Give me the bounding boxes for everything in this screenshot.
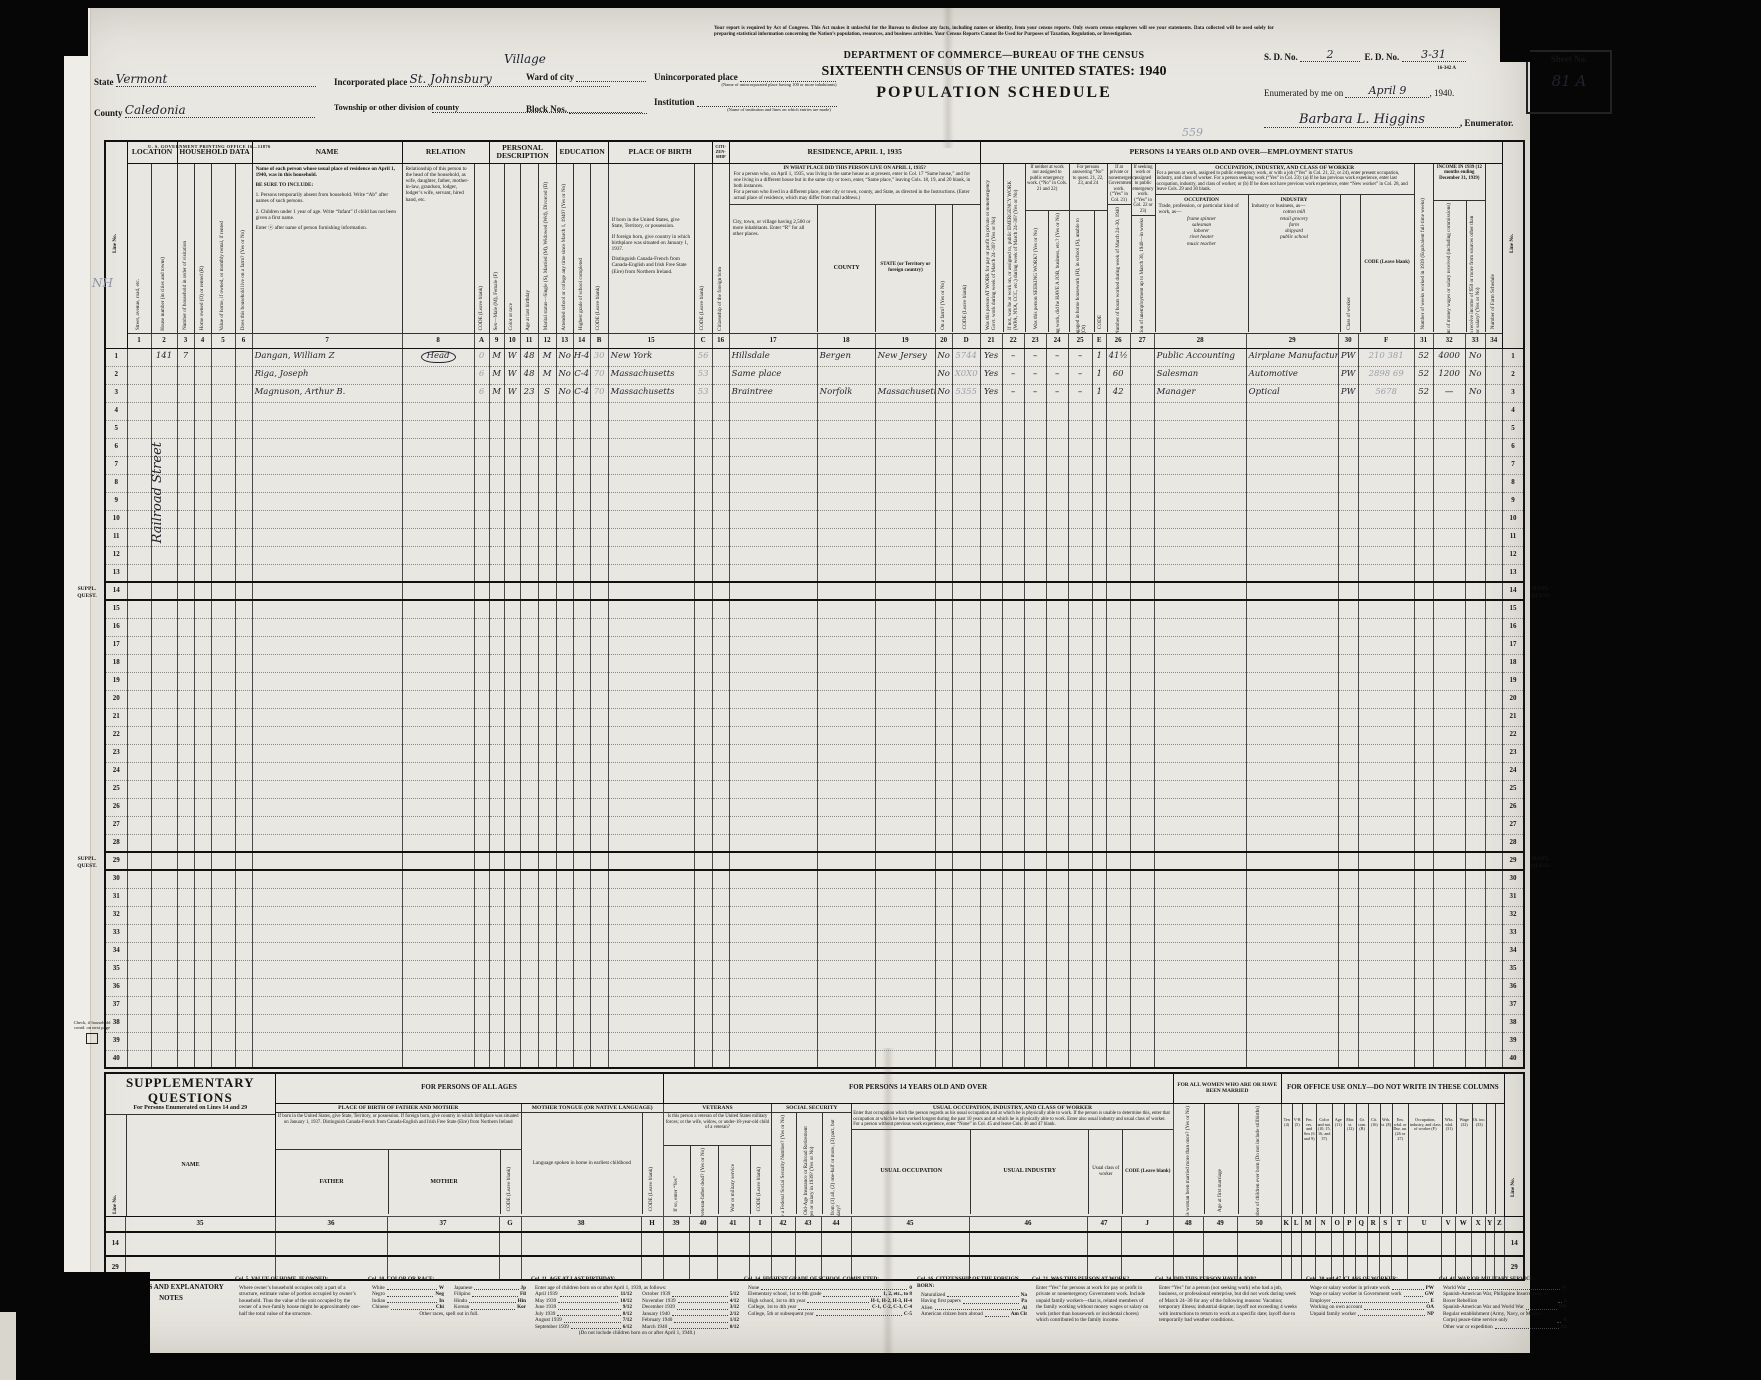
supp-cell: [1291, 1232, 1301, 1256]
col-number: 9: [489, 333, 504, 348]
grid-cell: [817, 924, 875, 942]
grid-cell: [712, 942, 729, 960]
col-header-age: Age at last birthday: [520, 163, 538, 333]
grid-cell: [556, 474, 573, 492]
grid-cell: [1046, 960, 1068, 978]
grid-cell: [817, 834, 875, 852]
grid-cell: [712, 816, 729, 834]
grid-cell: [538, 708, 556, 726]
grid-cell: [538, 528, 556, 546]
grid-cell: [1068, 438, 1092, 456]
grid-cell: No: [935, 348, 952, 366]
grid-cell: [1246, 618, 1338, 636]
line-number: 3: [105, 384, 127, 402]
grid-cell: [1485, 744, 1502, 762]
grid-cell: [875, 996, 935, 1014]
grid-cell: [194, 960, 211, 978]
office-col-header: Ten (4): [1282, 1104, 1292, 1214]
grid-cell: [1068, 510, 1092, 528]
grid-cell: [712, 978, 729, 996]
grid-cell: [194, 618, 211, 636]
group-seeking: If seeking work or assigned to public em…: [1131, 164, 1155, 332]
street-name-handwriting: Railroad Street: [150, 338, 165, 648]
grid-cell: [1154, 978, 1246, 996]
grid-cell: [504, 888, 520, 906]
line-number: 23: [105, 744, 127, 762]
grid-cell: [980, 528, 1002, 546]
grid-cell: [817, 438, 875, 456]
grid-cell: [1433, 852, 1465, 870]
grid-cell: [127, 564, 151, 582]
grid-cell: [504, 978, 520, 996]
grid-cell: [875, 780, 935, 798]
grid-cell: [980, 672, 1002, 690]
grid-cell: [1358, 402, 1414, 420]
grid-cell: [1046, 888, 1068, 906]
grid-cell: [694, 816, 712, 834]
grid-cell: [1246, 564, 1338, 582]
line-number: 40: [1502, 1050, 1524, 1068]
grid-cell: [875, 726, 935, 744]
supp-pob-group: PLACE OF BIRTH OF FATHER AND MOTHER If b…: [276, 1104, 521, 1214]
line-number: 8: [105, 474, 127, 492]
supp-col-number: 48: [1173, 1217, 1203, 1232]
grid-cell: [1046, 852, 1068, 870]
grid-cell: [252, 690, 402, 708]
grid-cell: [474, 888, 489, 906]
grid-cell: [980, 492, 1002, 510]
grid-cell: [1338, 906, 1358, 924]
grid-cell: [1106, 438, 1130, 456]
grid-cell: Hillsdale: [729, 348, 817, 366]
grid-cell: [1002, 600, 1024, 618]
grid-cell: [608, 996, 694, 1014]
supp-col-49: Age at first marriage: [1218, 1167, 1224, 1214]
schedule-row: 2323: [105, 744, 1524, 762]
grid-cell: [489, 924, 504, 942]
grid-cell: Manager: [1154, 384, 1246, 402]
grid-cell: [1024, 978, 1046, 996]
grid-cell: [402, 546, 474, 564]
grid-cell: [402, 798, 474, 816]
grid-cell: [1358, 438, 1414, 456]
grid-cell: [1024, 726, 1046, 744]
grid-cell: [211, 564, 235, 582]
grid-cell: [504, 744, 520, 762]
grid-cell: [1465, 942, 1485, 960]
grid-cell: [177, 528, 194, 546]
grid-cell: [694, 762, 712, 780]
grid-cell: [1338, 708, 1358, 726]
grid-cell: [402, 672, 474, 690]
supp-col-number: 41: [717, 1217, 749, 1232]
grid-cell: [1338, 798, 1358, 816]
grid-cell: [694, 978, 712, 996]
grid-cell: [573, 582, 590, 600]
suppl-quest-label-right-29: SUPPL. QUEST.: [1526, 856, 1556, 869]
grid-cell: [556, 1032, 573, 1050]
grid-cell: [952, 690, 980, 708]
grid-cell: [1246, 888, 1338, 906]
supp-women-block: Has this woman been married more than on…: [1173, 1103, 1281, 1216]
supp-col-number: X: [1471, 1217, 1485, 1232]
grid-cell: [177, 888, 194, 906]
grid-cell: [474, 420, 489, 438]
supp-cell: [795, 1232, 821, 1256]
col-header-code-c: CODE (Leave blank): [694, 163, 712, 333]
grid-cell: [1358, 852, 1414, 870]
grid-cell: [194, 906, 211, 924]
grid-cell: [1338, 816, 1358, 834]
grid-cell: [1154, 528, 1246, 546]
grid-cell: [817, 456, 875, 474]
grid-cell: [590, 888, 608, 906]
grid-cell: C-4: [573, 384, 590, 402]
grid-cell: [729, 906, 817, 924]
grid-cell: [489, 834, 504, 852]
grid-cell: [194, 726, 211, 744]
grid-cell: [556, 546, 573, 564]
grid-cell: [1092, 600, 1106, 618]
grid-cell: [211, 798, 235, 816]
grid-cell: [556, 744, 573, 762]
grid-cell: [590, 906, 608, 924]
grid-cell: [590, 510, 608, 528]
grid-cell: [1068, 906, 1092, 924]
line-number: 10: [1502, 510, 1524, 528]
grid-cell: [1465, 888, 1485, 906]
grid-cell: [952, 870, 980, 888]
supp-rows: 14142929: [105, 1232, 1524, 1280]
grid-cell: [127, 1050, 151, 1068]
grid-cell: [538, 636, 556, 654]
grid-cell: [1338, 762, 1358, 780]
grid-cell: [590, 402, 608, 420]
grid-cell: [538, 852, 556, 870]
grid-cell: [474, 852, 489, 870]
grid-cell: [1433, 924, 1465, 942]
grid-cell: [177, 672, 194, 690]
grid-cell: [194, 798, 211, 816]
grid-cell: [1046, 762, 1068, 780]
supp-cell: [521, 1232, 641, 1256]
grid-cell: [1154, 744, 1246, 762]
col-number: 34: [1485, 333, 1502, 348]
grid-cell: [504, 672, 520, 690]
grid-cell: [235, 960, 252, 978]
col-number: A: [474, 333, 489, 348]
grid-cell: [1046, 1032, 1068, 1050]
grid-cell: [1246, 690, 1338, 708]
grid-cell: [1358, 888, 1414, 906]
pencil-scribble: 559: [1182, 126, 1203, 139]
col-number: 10: [504, 333, 520, 348]
grid-cell: [235, 564, 252, 582]
grid-cell: [538, 1014, 556, 1032]
grid-cell: [875, 708, 935, 726]
grid-cell: [712, 582, 729, 600]
grid-cell: [1002, 816, 1024, 834]
grid-cell: [1485, 618, 1502, 636]
grid-cell: [694, 744, 712, 762]
grid-cell: [1154, 636, 1246, 654]
line-number: 23: [1502, 744, 1524, 762]
grid-cell: [1433, 942, 1465, 960]
grid-cell: [729, 510, 817, 528]
grid-cell: [538, 654, 556, 672]
grid-cell: [712, 834, 729, 852]
office-col-header: Ot. inc. (33): [1472, 1104, 1486, 1214]
grid-cell: [1106, 600, 1130, 618]
grid-cell: [474, 474, 489, 492]
grid-cell: [608, 636, 694, 654]
grid-cell: [1414, 924, 1433, 942]
grid-cell: [504, 492, 520, 510]
grid-cell: [817, 816, 875, 834]
grid-cell: [504, 996, 520, 1014]
grid-cell: [729, 960, 817, 978]
col-number: 12: [538, 333, 556, 348]
grid-cell: [489, 438, 504, 456]
grid-cell: [151, 1032, 177, 1050]
grid-cell: [817, 528, 875, 546]
grid-cell: [504, 834, 520, 852]
grid-cell: [1068, 564, 1092, 582]
grid-cell: [504, 1050, 520, 1068]
grid-cell: [1106, 816, 1130, 834]
grid-cell: [608, 834, 694, 852]
col-header-unemployment-duration: Duration of unemployment up to March 30,…: [1132, 216, 1155, 333]
enumeration-date: April 9: [1345, 84, 1429, 98]
grid-cell: [177, 762, 194, 780]
grid-cell: [875, 546, 935, 564]
grid-cell: 2898 69: [1358, 366, 1414, 384]
grid-cell: [211, 618, 235, 636]
col-number: 32: [1433, 333, 1465, 348]
grid-cell: [556, 528, 573, 546]
grid-cell: [235, 888, 252, 906]
grid-cell: [1433, 1050, 1465, 1068]
grid-cell: [1358, 1050, 1414, 1068]
grid-cell: [875, 474, 935, 492]
grid-cell: [1002, 726, 1024, 744]
supp-group-office: FOR OFFICE USE ONLY—DO NOT WRITE IN THES…: [1281, 1073, 1504, 1103]
grid-cell: [520, 474, 538, 492]
grid-cell: 7: [177, 348, 194, 366]
grid-cell: [474, 708, 489, 726]
state-value: Vermont: [116, 72, 316, 87]
grid-cell: [590, 474, 608, 492]
grid-cell: [1046, 402, 1068, 420]
col-header-code-e: CODE: [1095, 211, 1107, 332]
grid-cell: [875, 438, 935, 456]
grid-cell: [1358, 816, 1414, 834]
grid-cell: [1106, 528, 1130, 546]
grid-cell: [729, 798, 817, 816]
grid-cell: [1246, 438, 1338, 456]
grid-cell: [875, 888, 935, 906]
grid-cell: [1002, 1050, 1024, 1068]
grid-cell: —: [1433, 384, 1465, 402]
col-number: 7: [252, 333, 402, 348]
grid-cell: [402, 366, 474, 384]
grid-cell: [573, 654, 590, 672]
grid-cell: [520, 942, 538, 960]
grid-cell: [556, 654, 573, 672]
grid-cell: [590, 924, 608, 942]
grid-cell: [538, 942, 556, 960]
office-col-header: [1486, 1104, 1495, 1214]
grid-cell: [402, 618, 474, 636]
grid-cell: [1068, 960, 1092, 978]
grid-cell: 1: [1092, 348, 1106, 366]
grid-cell: [1433, 492, 1465, 510]
line-no-header-right: Line No.: [1502, 141, 1524, 348]
sheet-number-box: Sheet No. 81 A: [1526, 50, 1612, 114]
grid-cell: [1338, 420, 1358, 438]
grid-cell: [1358, 1032, 1414, 1050]
grid-cell: [211, 672, 235, 690]
grid-cell: [252, 636, 402, 654]
schedule-row: 3737: [105, 996, 1524, 1014]
grid-cell: [980, 1050, 1002, 1068]
grid-cell: [952, 636, 980, 654]
supp-cell: [1391, 1232, 1407, 1256]
grid-cell: [1130, 744, 1154, 762]
grid-cell: [235, 1050, 252, 1068]
line-number: 25: [105, 780, 127, 798]
grid-cell: [1246, 420, 1338, 438]
grid-cell: [504, 870, 520, 888]
supp-col-39: If so, enter “Yes”: [674, 1174, 680, 1214]
grid-cell: [402, 690, 474, 708]
grid-cell: [1024, 816, 1046, 834]
grid-cell: [712, 618, 729, 636]
grid-cell: [1024, 1050, 1046, 1068]
supp-cell: [1173, 1232, 1203, 1256]
scan-corner-topright: [1500, 0, 1530, 62]
grid-cell: [935, 690, 952, 708]
grid-cell: [1154, 708, 1246, 726]
schedule-row: 2020: [105, 690, 1524, 708]
scan-sliver: [0, 1312, 16, 1380]
grid-cell: [1092, 528, 1106, 546]
grid-cell: [194, 1050, 211, 1068]
line-number: 38: [1502, 1014, 1524, 1032]
grid-cell: [1092, 1032, 1106, 1050]
grid-cell: [504, 528, 520, 546]
grid-cell: [1414, 636, 1433, 654]
grid-cell: [556, 438, 573, 456]
grid-cell: [608, 798, 694, 816]
schedule-row: 1717: [105, 636, 1524, 654]
grid-cell: [729, 672, 817, 690]
grid-cell: [694, 708, 712, 726]
grid-cell: [235, 672, 252, 690]
grid-cell: [608, 654, 694, 672]
grid-cell: [1130, 708, 1154, 726]
grid-cell: [590, 672, 608, 690]
grid-cell: [556, 780, 573, 798]
grid-cell: [1246, 960, 1338, 978]
grid-cell: [520, 618, 538, 636]
grid-cell: [1246, 1014, 1338, 1032]
grid-cell: [817, 780, 875, 798]
grid-cell: [590, 582, 608, 600]
grid-cell: [875, 690, 935, 708]
grid-cell: [1465, 1032, 1485, 1050]
grid-cell: [1338, 996, 1358, 1014]
grid-cell: [1358, 924, 1414, 942]
grid-cell: [1092, 618, 1106, 636]
supp-cell: [1087, 1232, 1121, 1256]
grid-cell: [194, 492, 211, 510]
grid-cell: [402, 600, 474, 618]
grid-cell: [1024, 528, 1046, 546]
grid-cell: [211, 852, 235, 870]
grid-cell: [252, 600, 402, 618]
grid-cell: [1092, 510, 1106, 528]
grid-cell: [1106, 672, 1130, 690]
line-number: 36: [1502, 978, 1524, 996]
grid-cell: [694, 582, 712, 600]
grid-cell: [1092, 492, 1106, 510]
grid-cell: [1046, 492, 1068, 510]
grid-cell: [151, 672, 177, 690]
grid-cell: PW: [1338, 384, 1358, 402]
grid-cell: [538, 726, 556, 744]
schedule-row: 77: [105, 456, 1524, 474]
grid-cell: [489, 942, 504, 960]
supp-col-40: If child, is veteran-father dead? (Yes o…: [701, 1146, 707, 1216]
grid-cell: [590, 492, 608, 510]
grid-cell: [1358, 618, 1414, 636]
grid-cell: [1246, 726, 1338, 744]
grid-cell: [1433, 618, 1465, 636]
grid-cell: [952, 780, 980, 798]
grid-cell: [729, 1032, 817, 1050]
grid-cell: [474, 402, 489, 420]
grid-cell: No: [1465, 348, 1485, 366]
grid-cell: [402, 528, 474, 546]
grid-cell: [538, 600, 556, 618]
grid-cell: [235, 744, 252, 762]
supp-group-all-ages: FOR PERSONS OF ALL AGES: [275, 1073, 663, 1103]
grid-cell: [1068, 600, 1092, 618]
schedule-row: 3636: [105, 978, 1524, 996]
grid-cell: [1130, 960, 1154, 978]
grid-cell: [952, 1032, 980, 1050]
schedule-row: 44: [105, 402, 1524, 420]
grid-cell: [573, 510, 590, 528]
suppl-quest-label-left-29: SUPPL. QUEST.: [72, 856, 102, 869]
grid-cell: [1246, 906, 1338, 924]
grid-cell: [608, 618, 694, 636]
grid-cell: [252, 420, 402, 438]
grid-cell: [573, 942, 590, 960]
grid-cell: [1106, 456, 1130, 474]
supp-line-number: 14: [1504, 1232, 1524, 1256]
grid-cell: [935, 996, 952, 1014]
grid-cell: [1130, 510, 1154, 528]
grid-cell: [177, 636, 194, 654]
grid-cell: [1485, 960, 1502, 978]
grid-cell: [573, 852, 590, 870]
grid-cell: [1024, 438, 1046, 456]
grid-cell: [504, 654, 520, 672]
grid-cell: [402, 906, 474, 924]
grid-cell: [1024, 762, 1046, 780]
